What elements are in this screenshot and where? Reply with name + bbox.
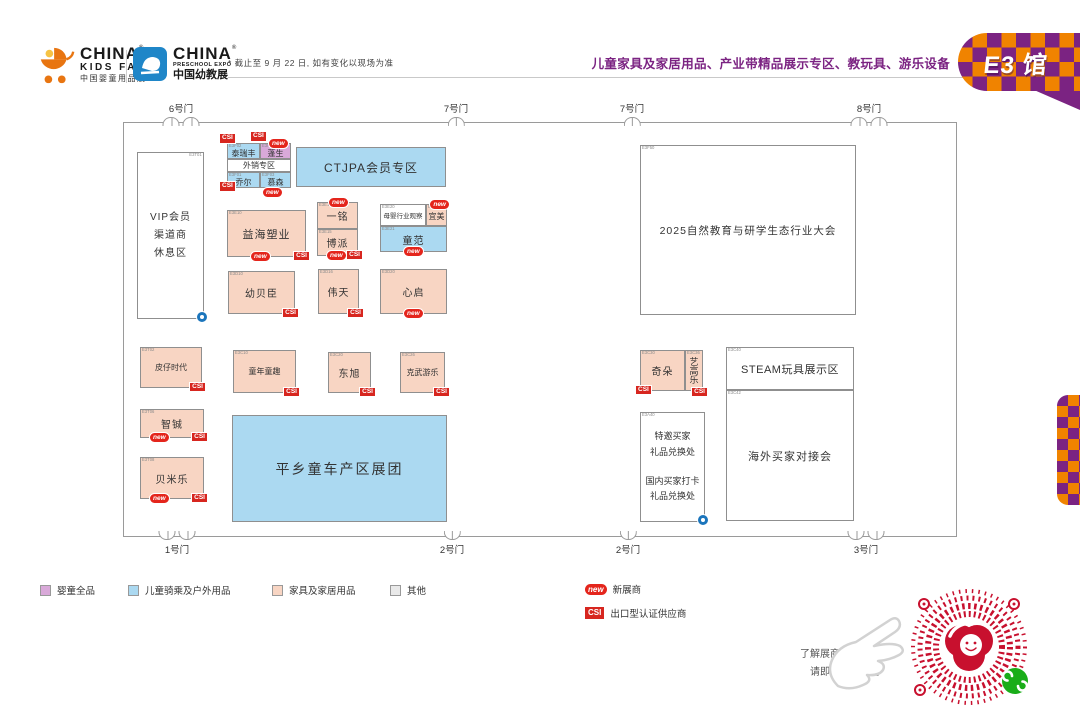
legend-swatch-blue	[128, 585, 139, 596]
new-badge: new	[328, 197, 349, 208]
csi-badge: CSI	[191, 493, 208, 504]
legend-item-baby-products: 婴童全品	[40, 583, 95, 597]
booth-beimile: E3T08 贝米乐 new CSI	[140, 457, 204, 499]
legend-label: 儿童骑乘及户外用品	[145, 583, 231, 597]
gate-top-6: 6号门	[163, 101, 200, 126]
gate-label: 7号门	[444, 101, 468, 115]
new-badge: new	[262, 187, 283, 198]
booth-tongnian: E3C10 童年童趣 CSI	[233, 350, 296, 393]
wechat-miniprogram-icon	[1000, 666, 1030, 696]
new-badge: new	[149, 493, 170, 504]
door-icon	[443, 531, 460, 540]
zone-export-area: 外销专区	[227, 159, 291, 172]
gate-label: 3号门	[848, 542, 885, 556]
booth-muying: E3E20 母婴行业观察	[380, 204, 426, 226]
door-icon	[163, 117, 180, 126]
booth-code: E3D10	[230, 272, 243, 276]
booth-yigaole: E3C36 艺高乐 CSI	[685, 350, 703, 391]
door-icon	[183, 117, 200, 126]
hall-e3-badge: E3 馆	[958, 33, 1080, 91]
gate-bottom-2a: 2号门	[440, 531, 464, 556]
booth-name-line: VIP会员	[150, 209, 191, 227]
zone-label-line: 特邀买家	[645, 429, 699, 444]
service-point-icon	[697, 514, 709, 526]
zone-label: CTJPA会员专区	[324, 159, 418, 176]
booth-name: 蓬生	[268, 148, 284, 159]
header-divider-line	[228, 77, 1080, 78]
new-badge: new	[585, 584, 607, 595]
csi-badge: CSI	[293, 251, 310, 262]
booth-code: E3F50	[642, 146, 654, 150]
gate-top-7a: 7号门	[444, 101, 468, 126]
csi-badge: CSI	[282, 308, 299, 319]
booth-youbeichen: E3D10 幼贝臣 CSI	[228, 271, 295, 314]
zone-overseas-buyers: E3C42 海外买家对接会	[726, 390, 854, 521]
booth-yiming: E3E16 一铭 new	[317, 202, 358, 229]
gate-top-7b: 7号门	[620, 101, 644, 126]
door-icon	[868, 531, 885, 540]
new-badge: new	[403, 308, 424, 319]
booth-qiduo: E3C30 奇朵 CSI	[640, 350, 685, 391]
booth-tongfan: E3E21 童范 new	[380, 226, 447, 252]
booth-name-line: 渠道商	[150, 227, 191, 245]
deadline-note: * 截止至 9 月 22 日, 如有变化以现场为准	[228, 57, 394, 69]
booth-pizai: E3T02 皮仔时代 CSI	[140, 347, 202, 388]
booth-code: E3C40	[728, 348, 741, 352]
floor-plan-page: CHINA® KIDS FAIR 中国婴童用品展 CHINA® PRESCHOO…	[0, 0, 1080, 713]
door-icon	[851, 117, 868, 126]
csi-badge: CSI	[346, 250, 363, 261]
logo-divider	[126, 50, 127, 83]
booth-name: 母婴行业观察	[384, 210, 423, 220]
csi-badge: CSI	[219, 181, 236, 192]
booth-code: E3T08	[142, 458, 154, 462]
zone-label: 平乡童车产区展团	[276, 459, 404, 479]
csi-badge: CSI	[635, 385, 652, 396]
legend-swatch-gray	[390, 585, 401, 596]
zone-gift-redemption: E3A40 特邀买家 礼品兑换处 国内买家打卡 礼品兑换处	[640, 412, 705, 522]
booth-code: E3E20	[382, 205, 395, 209]
preschool-expo-icon	[133, 47, 167, 81]
legend-label: 婴童全品	[57, 583, 95, 597]
csi-badge: CSI	[250, 131, 267, 142]
new-badge: new	[326, 250, 347, 261]
booth-code: E3T06	[142, 410, 154, 414]
booth-code: E3E10	[229, 211, 242, 215]
pointing-hand-icon	[820, 608, 920, 693]
zone-label-line: 国内买家打卡	[645, 474, 699, 489]
door-icon	[848, 531, 865, 540]
booth-code: E3F02	[229, 144, 241, 148]
legend-item-ride-on: 儿童骑乘及户外用品	[128, 583, 231, 597]
gate-label: 2号门	[440, 542, 464, 556]
preschool-title: CHINA	[173, 44, 232, 63]
zone-conference: E3F50 2025自然教育与研学生态行业大会	[640, 145, 856, 315]
booth-name: 乔尔	[236, 177, 252, 188]
csi-badge: CSI	[433, 387, 450, 398]
gate-label: 2号门	[616, 542, 640, 556]
zone-label-line: 礼品兑换处	[645, 445, 699, 460]
csi-badge: CSI	[189, 382, 206, 393]
booth-name: 童范	[403, 232, 425, 247]
booth-name-line: 休息区	[150, 245, 191, 263]
door-icon	[619, 531, 636, 540]
booth-code: E3D20	[382, 270, 395, 274]
zone-label: 外销专区	[243, 160, 275, 171]
checkered-side-tab	[1057, 395, 1080, 505]
booth-name: 皮仔时代	[155, 362, 187, 373]
csi-badge: CSI	[359, 387, 376, 398]
booth-vip-lounge: E3T01 VIP会员 渠道商 休息区	[137, 152, 204, 319]
booth-code: E3C36	[687, 351, 700, 355]
gate-label: 7号门	[620, 101, 644, 115]
registered-mark: ®	[232, 45, 237, 51]
legend-label: 其他	[407, 583, 426, 597]
legend-item-new-exhibitor: new 新展商	[585, 582, 641, 596]
hall-category-title: 儿童家具及家居用品、产业带精品展示专区、教玩具、游乐设备	[592, 53, 950, 72]
legend-swatch-purple	[40, 585, 51, 596]
csi-badge: CSI	[219, 133, 236, 144]
booth-code: E3C30	[642, 351, 655, 355]
booth-name: 贝米乐	[156, 471, 189, 486]
new-badge: new	[268, 138, 289, 149]
new-badge: new	[429, 199, 450, 210]
booth-kewu: E3C26 克武游乐 CSI	[400, 352, 445, 393]
door-icon	[871, 117, 888, 126]
booth-name: 奇朵	[652, 363, 674, 378]
booth-weitian: E3D16 伟天 CSI	[318, 269, 359, 314]
door-icon	[623, 117, 640, 126]
booth-name: 一铭	[327, 208, 349, 223]
csi-badge: CSI	[691, 387, 708, 398]
gate-label: 1号门	[159, 542, 196, 556]
door-icon	[447, 117, 464, 126]
service-point-icon	[196, 311, 208, 323]
booth-name: 泰瑞丰	[232, 148, 256, 159]
booth-code: E3T02	[142, 348, 154, 352]
zone-label: 海外买家对接会	[748, 448, 832, 464]
legend-label: 家具及家居用品	[289, 583, 356, 597]
hall-badge-tail	[1034, 90, 1080, 110]
booth-musen: E3F03 慕森	[260, 172, 291, 188]
booth-name: 益海塑业	[243, 226, 291, 242]
gate-bottom-3: 3号门	[848, 531, 885, 556]
booth-code: E3E15	[319, 230, 332, 234]
booth-name: 宜美	[429, 211, 445, 222]
gate-label: 8号门	[851, 101, 888, 115]
booth-code: E3D16	[320, 270, 333, 274]
gate-label: 6号门	[163, 101, 200, 115]
booth-name: 东旭	[339, 365, 361, 380]
booth-zhicheng: E3T06 智铖 new CSI	[140, 409, 204, 438]
booth-dongxu: E3C20 东旭 CSI	[328, 352, 371, 393]
door-icon	[159, 531, 176, 540]
legend-label: 出口型认证供应商	[610, 606, 686, 620]
zone-pingxiang: 平乡童车产区展团	[232, 415, 447, 522]
preschool-cn: 中国幼教展	[173, 70, 237, 82]
booth-code: E3C10	[235, 351, 248, 355]
door-icon	[179, 531, 196, 540]
booth-code: E3C20	[330, 353, 343, 357]
booth-tairuifeng: E3F02 泰瑞丰	[227, 143, 260, 159]
gate-bottom-1: 1号门	[159, 531, 196, 556]
zone-ctjpa: CTJPA会员专区	[296, 147, 446, 187]
hall-e3-label: E3 馆	[982, 45, 1056, 80]
booth-code: E3A40	[642, 413, 655, 417]
booth-name: 博派	[327, 235, 349, 250]
legend-item-other: 其他	[390, 583, 426, 597]
booth-name: 伟天	[328, 284, 350, 299]
csi-badge: CSI	[283, 387, 300, 398]
booth-name: 幼贝臣	[245, 285, 278, 300]
booth-code: E3F03	[262, 173, 274, 177]
booth-xinqi: E3D20 心启 new	[380, 269, 447, 314]
zone-label: 2025自然教育与研学生态行业大会	[660, 223, 837, 238]
booth-name: 心启	[403, 284, 425, 299]
booth-code: E3E21	[382, 227, 395, 231]
booth-name: 智铖	[161, 416, 183, 431]
zone-label-line: 礼品兑换处	[645, 489, 699, 504]
booth-yimei: E3E26 宜美 new	[426, 204, 447, 226]
kids-fair-title: CHINA	[80, 44, 139, 63]
legend-label: 新展商	[613, 582, 642, 596]
booth-code: E3F01	[229, 173, 241, 177]
booth-code: E3C26	[402, 353, 415, 357]
csi-badge: CSI	[191, 432, 208, 443]
booth-yihai: E3E10 益海塑业 new CSI	[227, 210, 306, 257]
booth-bopai: E3E15 博派 new CSI	[317, 229, 358, 256]
gate-top-8: 8号门	[851, 101, 888, 126]
booth-name: 童年童趣	[249, 366, 281, 377]
gate-bottom-2b: 2号门	[616, 531, 640, 556]
booth-name: 艺高乐	[688, 357, 701, 384]
new-badge: new	[250, 251, 271, 262]
booth-name: 慕森	[268, 177, 284, 188]
zone-steam: E3C40 STEAM玩具展示区	[726, 347, 854, 390]
booth-name: 克武游乐	[407, 367, 439, 378]
legend-swatch-salmon	[272, 585, 283, 596]
legend-item-furniture: 家具及家居用品	[272, 583, 356, 597]
legend-item-csi-supplier: CSI 出口型认证供应商	[585, 606, 686, 620]
csi-badge: CSI	[347, 308, 364, 319]
booth-code: E3T01	[190, 153, 202, 157]
new-badge: new	[149, 432, 170, 443]
zone-label: STEAM玩具展示区	[741, 361, 839, 377]
new-badge: new	[403, 246, 424, 257]
csi-badge: CSI	[585, 607, 604, 619]
booth-code: E3C42	[728, 391, 741, 395]
kids-fair-stroller-icon	[36, 45, 78, 87]
